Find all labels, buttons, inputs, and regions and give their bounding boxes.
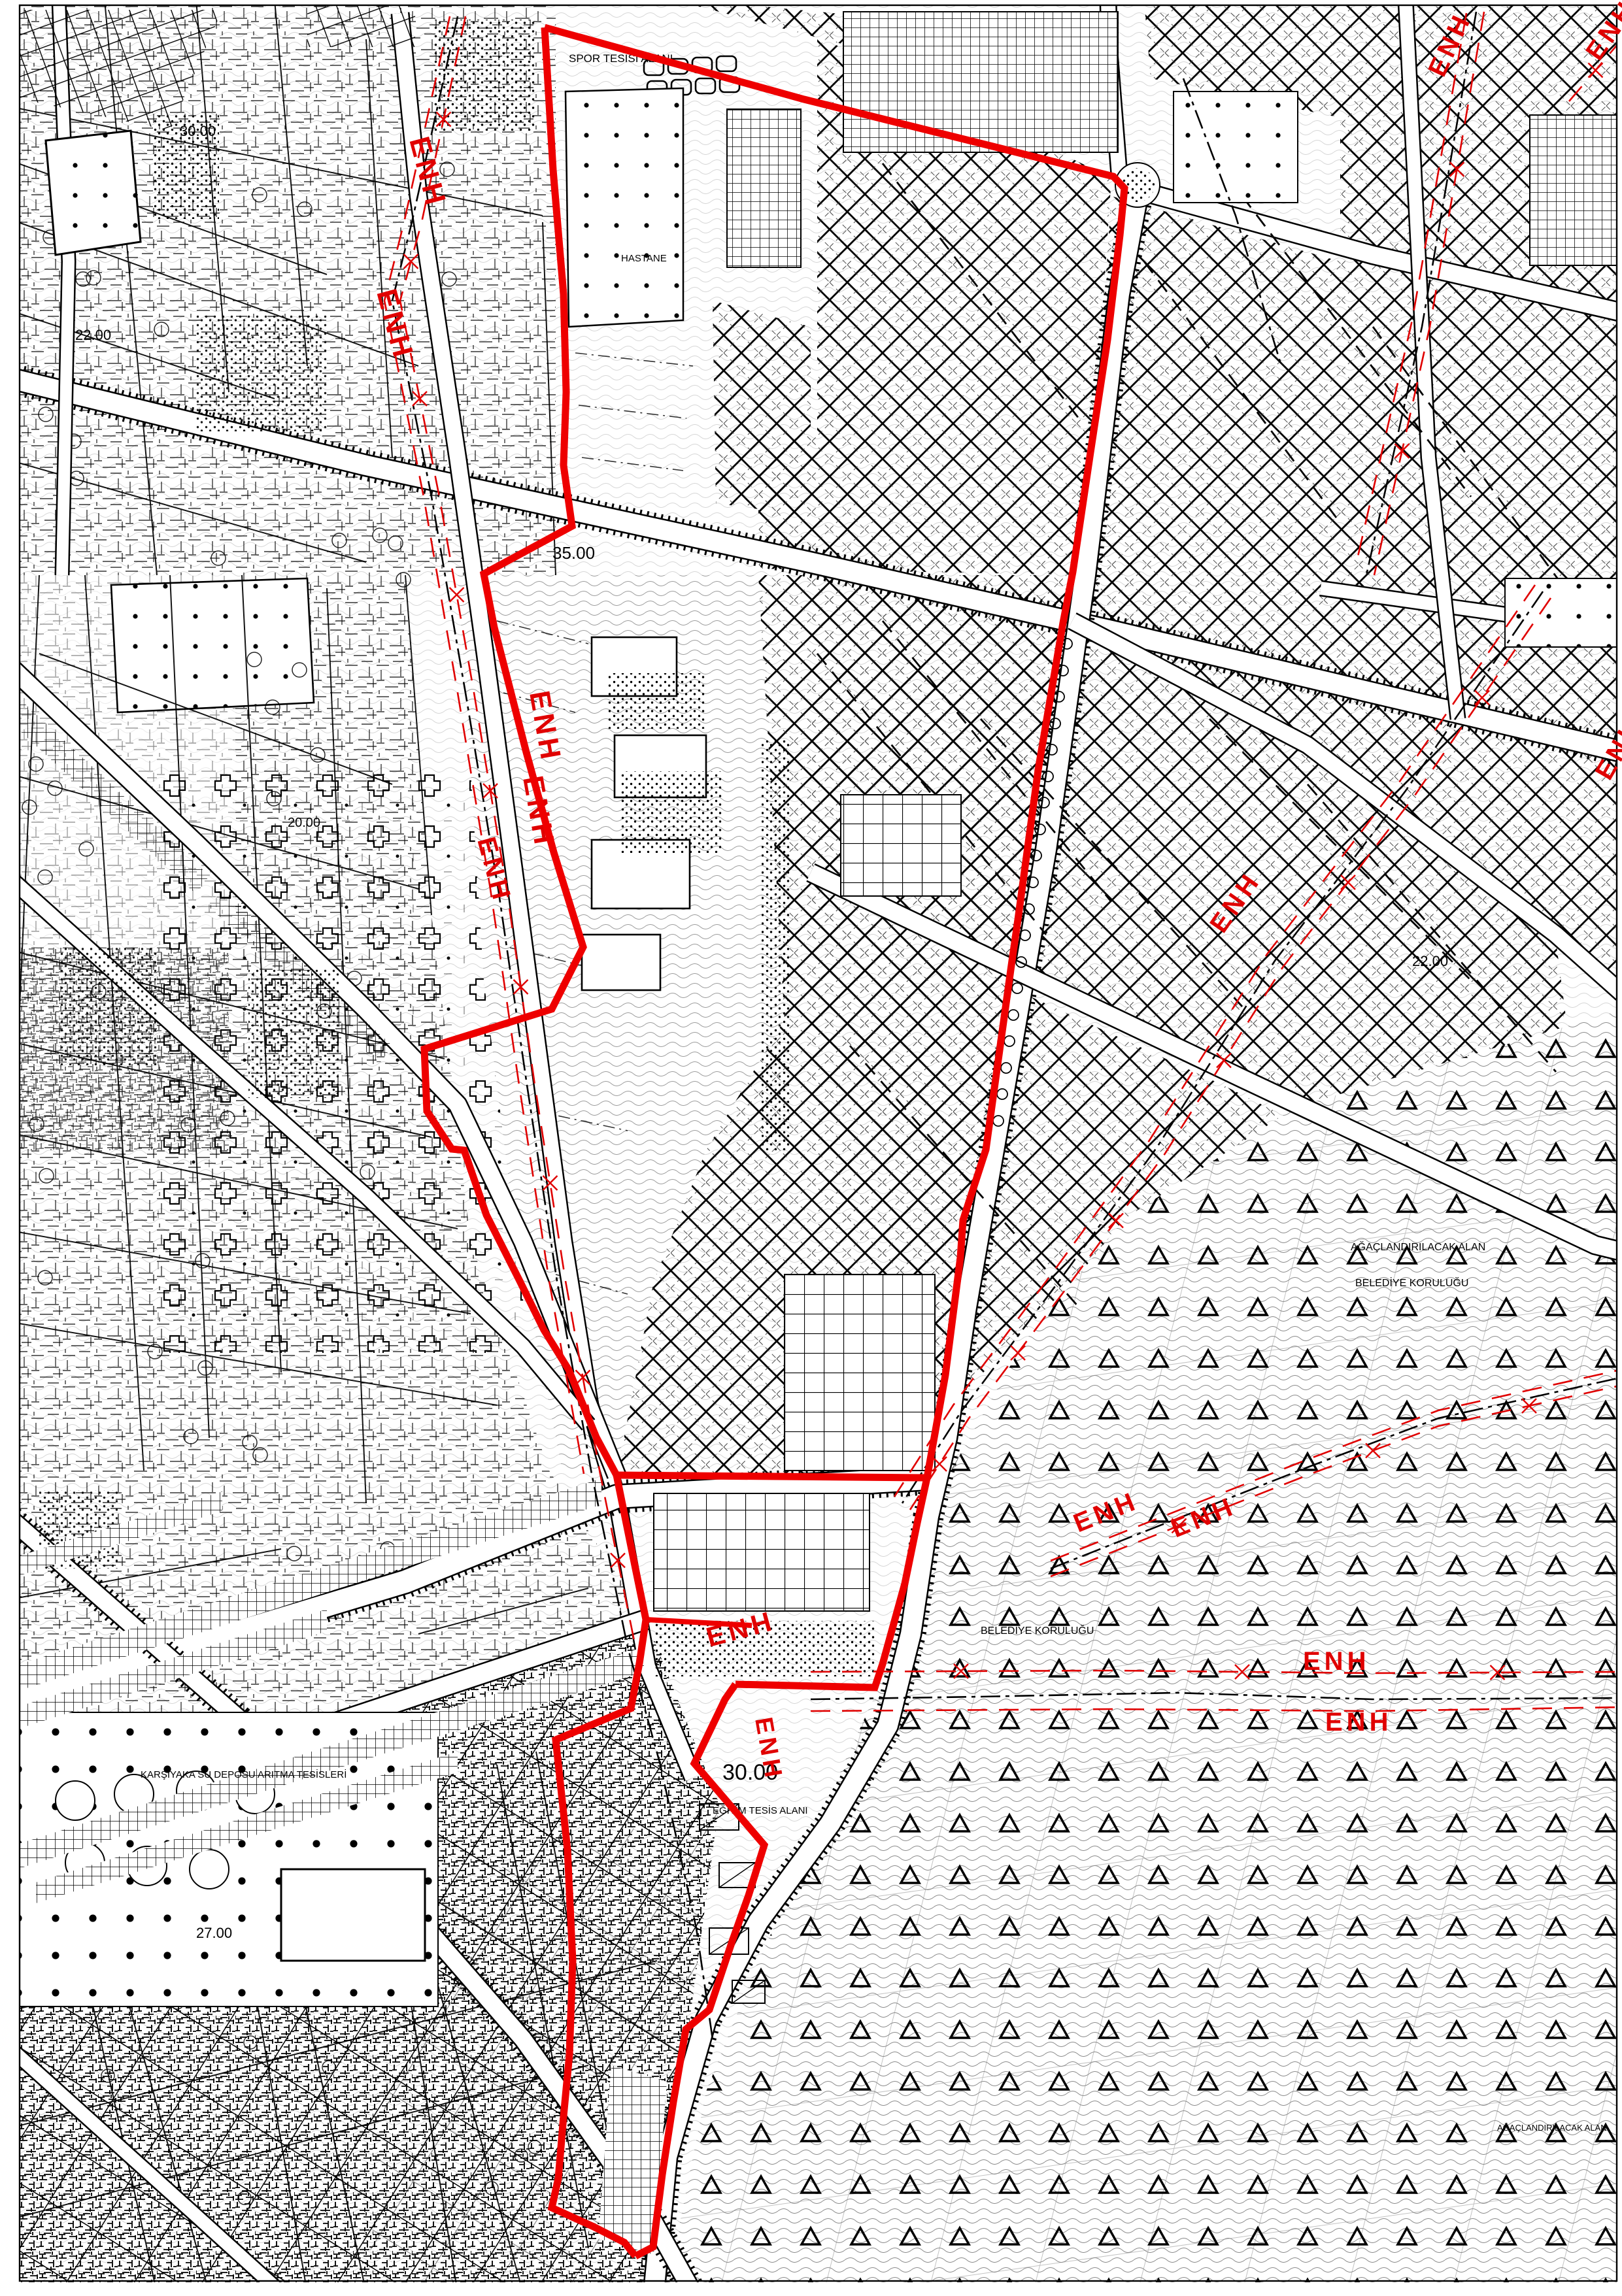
svg-text:BELEDİYE KORULUĞU: BELEDİYE KORULUĞU [981, 1624, 1094, 1637]
svg-text:KARŞIYAKA SU DEPOSU ARITMA TES: KARŞIYAKA SU DEPOSU ARITMA TESİSLERİ [141, 1769, 346, 1780]
svg-text:27.00: 27.00 [196, 1925, 232, 1941]
svg-text:20.00: 20.00 [288, 816, 320, 830]
svg-text:BELEDİYE KORULUĞU: BELEDİYE KORULUĞU [1355, 1276, 1468, 1289]
svg-text:35.00: 35.00 [552, 543, 595, 563]
svg-text:30.00: 30.00 [180, 123, 216, 139]
svg-text:AĞAÇLANDIRILACAK ALAN: AĞAÇLANDIRILACAK ALAN [1497, 2123, 1607, 2133]
svg-text:ENH: ENH [1325, 1708, 1392, 1737]
svg-text:22.00: 22.00 [1412, 953, 1448, 969]
svg-text:22.00: 22.00 [75, 327, 111, 343]
svg-text:AĞAÇLANDIRILACAK ALAN: AĞAÇLANDIRILACAK ALAN [1351, 1240, 1485, 1253]
svg-text:ENH: ENH [1303, 1647, 1370, 1676]
svg-text:HASTANE: HASTANE [621, 253, 667, 264]
